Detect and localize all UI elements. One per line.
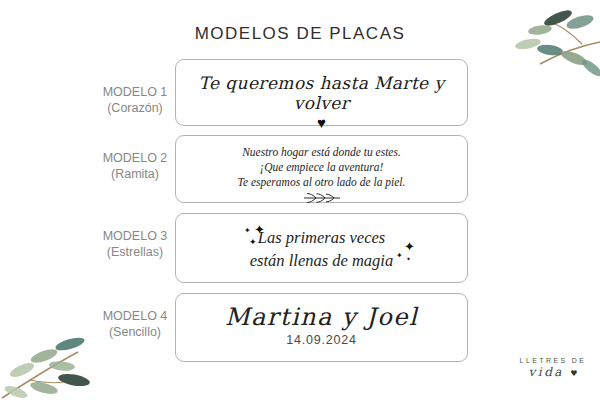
catalog-page: MODELOS DE PLACAS MODELO 1 (Corazón) Te … [0,0,600,400]
model-1-name: MODELO 1 [88,84,182,100]
model-1-variant: (Corazón) [88,100,182,116]
plaque-2-line-3: Te esperamos al otro lado de la piel. [176,175,467,190]
brand-name-top: LLETRES DE [512,357,594,364]
brand-logo: LLETRES DE vida ♥ [512,357,594,379]
model-4-variant: (Sencillo) [88,324,182,340]
model-3-variant: (Estrellas) [88,244,182,260]
model-2-label: MODELO 2 (Ramita) [88,150,182,182]
sparkle-icon: ✦ [404,240,415,253]
plaque-3-line-2: están llenas de magia [176,249,467,272]
sparkle-icon: ✦ [254,223,265,236]
model-3-name: MODELO 3 [88,228,182,244]
sparkle-icon: ✦ [396,252,403,260]
model-4-label: MODELO 4 (Sencillo) [88,308,182,340]
plaque-3-line-1: Las primeras veces [176,226,467,249]
plaque-2-line-2: ¡Que empiece la aventura! [176,160,467,175]
plaque-model-4: Martina y Joel 14.09.2024 [175,293,468,362]
plaque-model-1: Te queremos hasta Marte y volver ♥ [175,59,468,126]
sparkle-icon: ✦ [249,238,257,247]
model-1-label: MODELO 1 (Corazón) [88,84,182,116]
olive-branch-bottom-left-icon [0,322,100,400]
plaque-model-2: Nuestro hogar está donde tu estes. ¡Que … [175,135,468,203]
model-2-variant: (Ramita) [88,166,182,182]
plaque-4-date: 14.09.2024 [176,333,467,347]
model-3-label: MODELO 3 (Estrellas) [88,228,182,260]
page-title: MODELOS DE PLACAS [0,24,600,44]
heart-icon: ♥ [176,116,467,130]
model-2-name: MODELO 2 [88,150,182,166]
plaque-model-3: Las primeras veces están llenas de magia… [175,213,468,283]
branch-sprig-icon [303,191,341,204]
plaque-4-names: Martina y Joel [176,303,467,331]
plaque-1-text: Te queremos hasta Marte y volver [176,73,467,113]
model-4-name: MODELO 4 [88,308,182,324]
brand-heart-icon: ♥ [570,369,577,378]
plaque-2-line-1: Nuestro hogar está donde tu estes. [176,145,467,160]
brand-word: vida [529,365,564,379]
brand-name-script: vida ♥ [512,365,594,379]
sparkle-icon: ✦ [244,227,251,235]
sparkle-icon: ✦ [406,256,411,262]
